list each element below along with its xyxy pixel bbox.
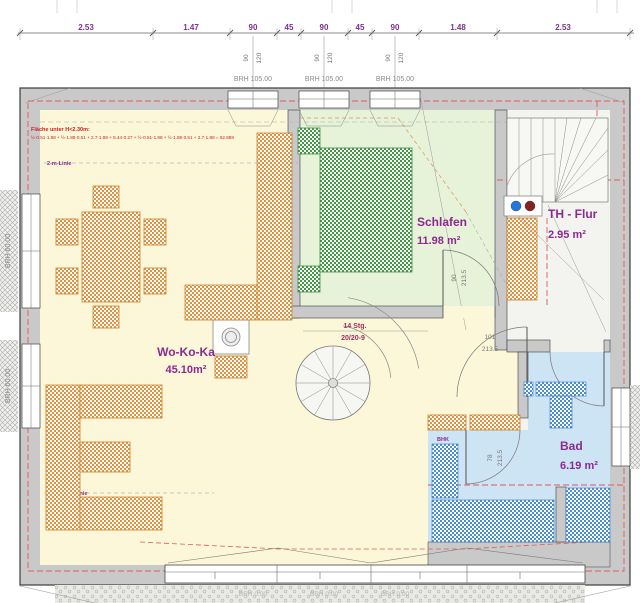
- brh-top-window-1: BRH 105.00: [234, 76, 272, 83]
- washbasin-top: [536, 382, 586, 396]
- bad-area: 6.19 m²: [560, 460, 598, 472]
- chimney-block: [215, 356, 247, 378]
- shower: [432, 500, 554, 542]
- brh-bottom-3: BRH 0.00: [381, 591, 410, 598]
- bad-wall-stub: [428, 415, 466, 430]
- dim-45-a: 45: [285, 23, 294, 32]
- warm-water-dot: [525, 201, 535, 211]
- counter-left-vertical: [46, 385, 80, 530]
- counter-left-mid-arm: [80, 442, 130, 472]
- dim-2-53-right: 2.53: [555, 23, 571, 32]
- dim-90-b: 90: [320, 23, 329, 32]
- brh-top-window-2: BRH 105.00: [305, 76, 343, 83]
- counter-left-top-arm: [80, 385, 162, 418]
- bad-door-height: 213.5: [497, 449, 504, 466]
- dim-45-b: 45: [356, 23, 365, 32]
- cold-water-dot: [511, 201, 521, 211]
- chair: [56, 219, 78, 245]
- washbasin-stem: [550, 396, 572, 428]
- chair: [56, 268, 78, 294]
- water-connection-box: [504, 196, 542, 216]
- stove-flue-icon: [222, 328, 240, 346]
- chair: [93, 186, 119, 208]
- dim-2-53-left: 2.53: [78, 23, 94, 32]
- bhk-radiator: [432, 444, 458, 498]
- bhk-label: BHK: [437, 437, 449, 443]
- brh-bottom-2: BRH 0.00: [310, 591, 339, 598]
- bed: [320, 148, 412, 272]
- schlafen-area: 11.98 m²: [417, 235, 461, 247]
- schlafen-door-height: 213.5: [461, 269, 468, 286]
- stair-label-rise: 20/20-9: [341, 335, 365, 342]
- chair: [144, 219, 166, 245]
- dining-table: [82, 212, 140, 302]
- axis-90-c: 90: [385, 54, 392, 62]
- floor-plan-drawing: 2.53 1.47 90 45 90 45 90 1.48 2.53 90 12…: [0, 0, 640, 603]
- floor-plan-canvas: 2.53 1.47 90 45 90 45 90 1.48 2.53 90 12…: [0, 0, 640, 603]
- counter-center-vertical: [257, 133, 292, 320]
- bad-name: Bad: [560, 439, 583, 453]
- bathtub: [566, 488, 610, 542]
- dim-1-48: 1.48: [450, 23, 466, 32]
- flur-door-width: 101: [485, 334, 496, 341]
- th-flur-area: 2.95 m²: [548, 229, 586, 241]
- counter-center-horizontal: [185, 285, 257, 320]
- dim-90-a: 90: [249, 23, 258, 32]
- wokoka-name: Wo-Ko-Ka: [157, 345, 215, 359]
- brh-left-window-2: BRH 60.00: [5, 369, 12, 403]
- chair: [144, 268, 166, 294]
- nightstand-bottom: [298, 266, 320, 292]
- bad-window: [612, 385, 640, 469]
- wokoka-area: 45.10m²: [166, 364, 207, 376]
- schlafen-door-width: 90: [451, 274, 458, 282]
- axis-90-b: 90: [314, 54, 321, 62]
- dim-1-47: 1.47: [183, 23, 199, 32]
- chair: [93, 306, 119, 328]
- axis-90-a: 90: [243, 54, 250, 62]
- axis-120-b: 120: [327, 52, 334, 63]
- brh-left-window-1: BRH 60.00: [5, 234, 12, 268]
- area-note-title: Fläche unter H<2.30m:: [31, 127, 90, 133]
- two-m-line-label-upper: 2-m-Linie: [47, 161, 71, 167]
- axis-120-c: 120: [398, 52, 405, 63]
- axis-120-a: 120: [256, 52, 263, 63]
- dim-90-c: 90: [391, 23, 400, 32]
- nightstand-top: [298, 128, 320, 154]
- counter-left-bottom-arm: [80, 497, 162, 530]
- stove-group: [213, 320, 249, 378]
- bad-door-width: 78: [487, 454, 494, 462]
- stair-label-steps: 14 Stg.: [344, 323, 367, 330]
- flur-door-height: 213.5: [482, 346, 499, 353]
- schlafen-name: Schlafen: [417, 215, 467, 229]
- brh-top-window-3: BRH 105.00: [376, 76, 414, 83]
- brh-bottom-1: BRH 0.00: [239, 591, 268, 598]
- area-note-formula: ½·0.51·1.88 + ½·1.88·0.51 + 2.7·1.88 + 5…: [31, 134, 234, 140]
- th-flur-name: TH - Flur: [548, 207, 598, 221]
